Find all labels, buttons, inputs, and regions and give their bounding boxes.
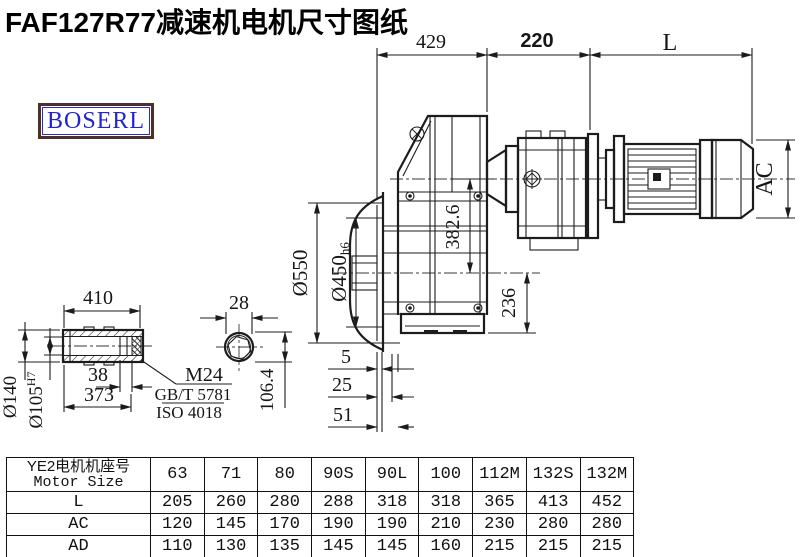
cell: 205 xyxy=(151,492,205,514)
cell: 210 xyxy=(419,514,473,536)
cell: 452 xyxy=(580,492,634,514)
cell: 280 xyxy=(580,514,634,536)
dim-L: L xyxy=(663,30,678,56)
gearbox-housing xyxy=(383,116,487,333)
cell: 260 xyxy=(204,492,258,514)
cell: 215 xyxy=(526,536,580,557)
cell: 130 xyxy=(204,536,258,557)
col-header: 112M xyxy=(473,458,527,492)
cell: 280 xyxy=(526,514,580,536)
cell: 120 xyxy=(151,514,205,536)
cell: 318 xyxy=(365,492,419,514)
eyebolt-icon xyxy=(410,127,424,141)
dim-450-label: Ø450h6 xyxy=(327,242,352,302)
dim-106: 106.4 xyxy=(255,332,292,411)
cell: 145 xyxy=(365,536,419,557)
cell: 170 xyxy=(258,514,312,536)
output-flange xyxy=(350,192,398,432)
dim-105-label: Ø105H7 xyxy=(24,372,47,429)
note-m24: M24 xyxy=(185,364,223,386)
technical-drawing: 429 220 L AC 382.6 236 Ø550 xyxy=(0,0,800,457)
cell: 280 xyxy=(258,492,312,514)
table-row-AD: AD 110 130 135 145 145 160 215 215 215 xyxy=(7,536,634,557)
col-header: 100 xyxy=(419,458,473,492)
dim-105: Ø105H7 xyxy=(24,328,62,428)
cell: 145 xyxy=(204,514,258,536)
dim-ac: AC xyxy=(752,140,795,218)
gearbox-base xyxy=(401,314,484,333)
dim-410-label: 410 xyxy=(83,287,113,309)
cell: 215 xyxy=(473,536,527,557)
cell: 413 xyxy=(526,492,580,514)
cell: 160 xyxy=(419,536,473,557)
dim-236-label: 236 xyxy=(498,288,520,318)
table-row-L: L 205 260 280 288 318 318 365 413 452 xyxy=(7,492,634,514)
cell: 365 xyxy=(473,492,527,514)
note-iso: ISO 4018 xyxy=(156,403,222,422)
dim-25-label: 25 xyxy=(332,374,352,396)
cell: 318 xyxy=(419,492,473,514)
dim-236: 236 xyxy=(488,273,536,333)
leader-m24: M24 GB/T 5781 ISO 4018 xyxy=(141,360,232,422)
cell: 145 xyxy=(312,536,366,557)
cell: 110 xyxy=(151,536,205,557)
cell: 288 xyxy=(312,492,366,514)
table-row-AC: AC 120 145 170 190 190 210 230 280 280 xyxy=(7,514,634,536)
cell: 215 xyxy=(580,536,634,557)
centerlines xyxy=(52,179,795,371)
dim-382-label: 382.6 xyxy=(442,205,464,250)
dim-140-label: Ø140 xyxy=(0,376,21,418)
dim-220: 220 xyxy=(520,30,553,52)
col-header: 63 xyxy=(151,458,205,492)
vent-plug-icon xyxy=(522,169,542,189)
dim-28-label: 28 xyxy=(229,292,249,314)
col-header: 132M xyxy=(580,458,634,492)
col-header: 80 xyxy=(258,458,312,492)
cell: 190 xyxy=(312,514,366,536)
dim-51-label: 51 xyxy=(333,404,353,426)
dim-ac-label: AC xyxy=(752,162,778,195)
motor xyxy=(588,134,753,238)
drawing-page: FAF127R77减速机电机尺寸图纸 BOSERL xyxy=(0,0,800,557)
row-label: L xyxy=(7,492,151,514)
dim-429: 429 xyxy=(416,31,446,53)
motor-size-table: YE2电机机座号 Motor Size 63 71 80 90S 90L 100… xyxy=(6,457,634,557)
dim-410: 410 xyxy=(64,287,140,328)
r-stage xyxy=(487,131,586,250)
row-label: AD xyxy=(7,536,151,557)
cell: 135 xyxy=(258,536,312,557)
header-motor-size: YE2电机机座号 Motor Size xyxy=(7,458,151,492)
cell: 190 xyxy=(365,514,419,536)
col-header: 90S xyxy=(312,458,366,492)
col-header: 90L xyxy=(365,458,419,492)
dim-373-label: 373 xyxy=(84,384,114,406)
col-header: 71 xyxy=(204,458,258,492)
dim-5-25-51: 5 25 51 xyxy=(328,346,414,427)
dim-550-label: Ø550 xyxy=(288,250,312,297)
dim-106-label: 106.4 xyxy=(257,368,278,411)
cell: 230 xyxy=(473,514,527,536)
dim-5-label: 5 xyxy=(341,346,351,368)
row-label: AC xyxy=(7,514,151,536)
table-header-row: YE2电机机座号 Motor Size 63 71 80 90S 90L 100… xyxy=(7,458,634,492)
dim-450: Ø450h6 xyxy=(327,218,384,327)
note-gbt: GB/T 5781 xyxy=(155,385,232,404)
dim-38-label: 38 xyxy=(88,364,108,386)
col-header: 132S xyxy=(526,458,580,492)
